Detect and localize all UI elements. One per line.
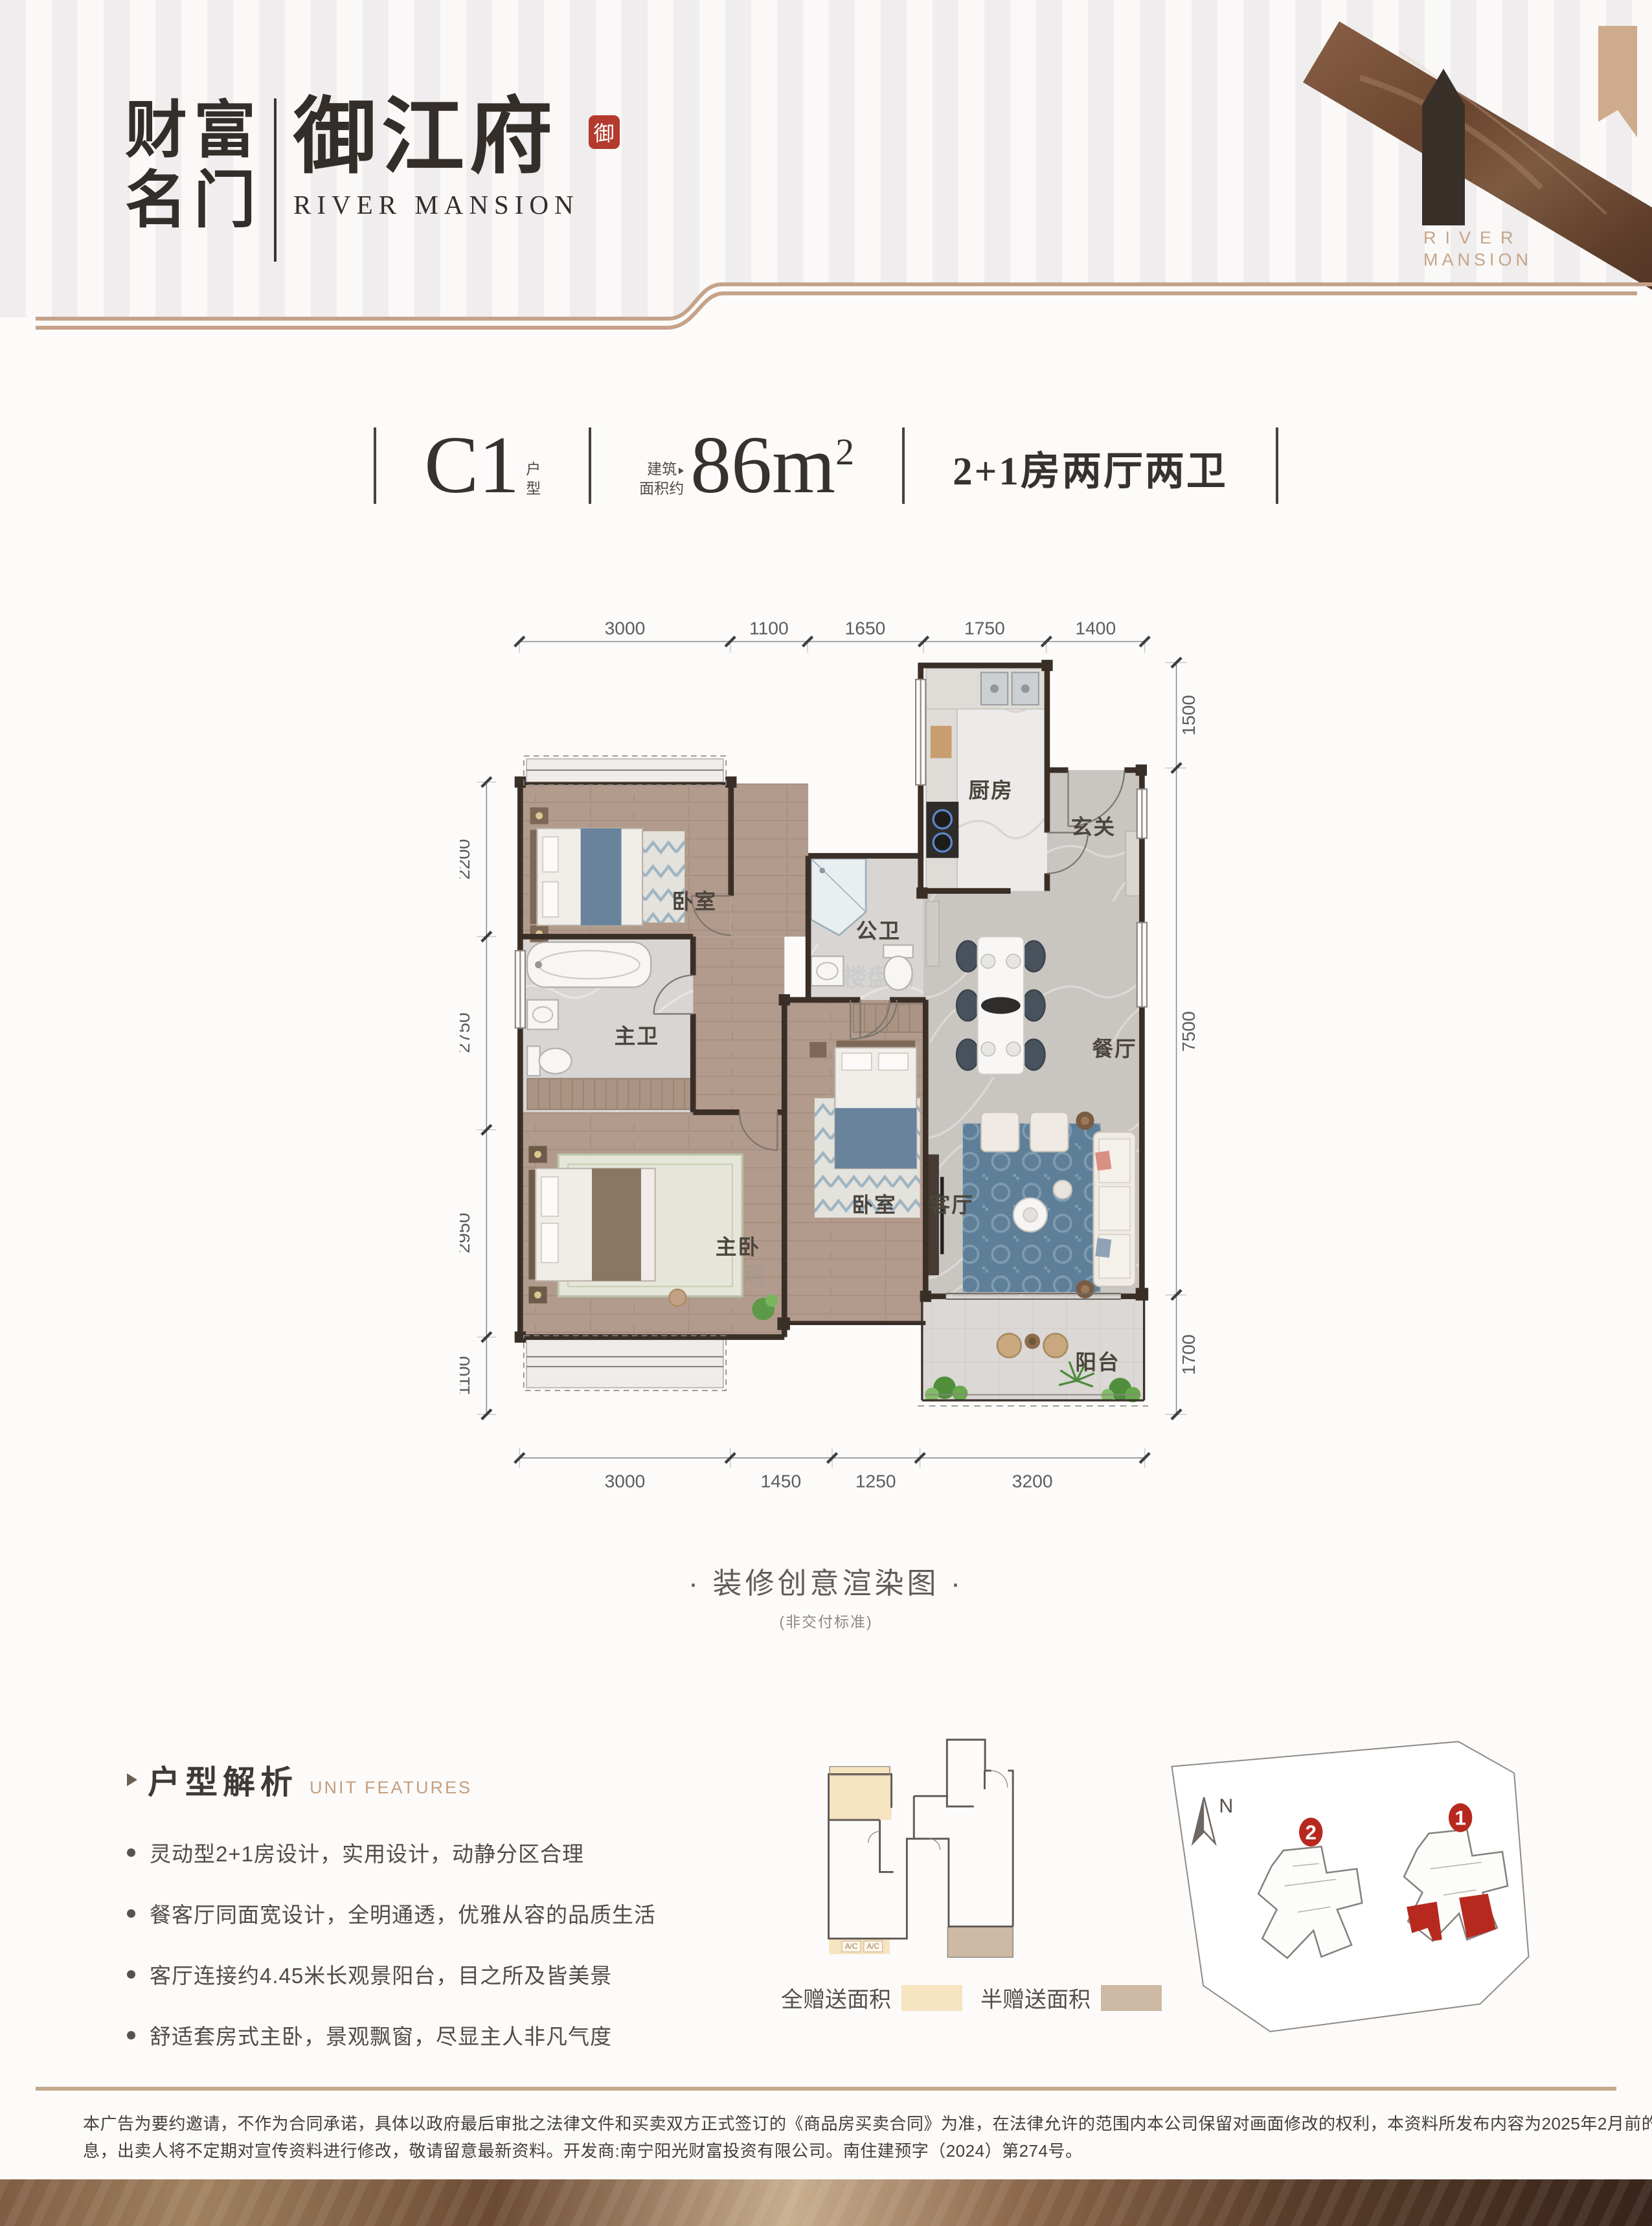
caption-text: · 装修创意渲染图 · <box>0 1560 1652 1602</box>
footer-rule <box>36 2087 1616 2091</box>
label-kitchen: 厨房 <box>968 778 1013 802</box>
svg-text:1100: 1100 <box>749 620 789 639</box>
features-list: 灵动型2+1房设计，实用设计，动静分区合理 餐客厅同面宽设计，全明通透，优雅从容… <box>127 1837 775 2050</box>
logo-main-block: 御江府 RIVER MANSION <box>293 96 580 220</box>
area-label: 建筑 面积约 <box>639 460 684 499</box>
svg-text:3000: 3000 <box>605 620 646 639</box>
unit-suffix: 户 型 <box>526 460 541 499</box>
siteplan: N 2 1 <box>1094 1689 1606 2043</box>
plan-caption: · 装修创意渲染图 · (非交付标准) <box>0 1560 1652 1631</box>
decor-mansion-text: MANSION <box>1423 250 1532 269</box>
gift-half-area <box>947 1927 1013 1958</box>
bullet-icon <box>127 1909 135 1918</box>
bottom-marble-band <box>0 2179 1652 2226</box>
logo-divider <box>274 98 277 262</box>
badge-1: 1 <box>1454 1807 1465 1830</box>
legend-full-label: 全赠送面积 <box>781 1982 891 2014</box>
label-dining: 餐厅 <box>1092 1038 1137 1061</box>
area-superscript: 2 <box>835 431 854 473</box>
brand-logo: 财富 名门 御江府 RIVER MANSION 御 <box>125 96 620 262</box>
svg-text:A/C: A/C <box>867 1943 879 1951</box>
svg-text:N: N <box>1219 1795 1233 1817</box>
disclaimer-line2: 息，出卖人将不定期对宣传资料进行修改，敬请留意最新资料。开发商:南宁阳光财富投资… <box>83 2137 1594 2164</box>
gift-area-miniplan: A/C A/C <box>821 1731 1035 1973</box>
svg-text:1650: 1650 <box>845 620 886 639</box>
disclaimer-line1: 本广告为要约邀请，不作为合同承诺，具体以政府最后审批之法律文件和买卖双方正式签订… <box>83 2110 1594 2137</box>
project-name-en: RIVER MANSION <box>293 189 580 220</box>
svg-text:1450: 1450 <box>760 1471 801 1492</box>
feature-item: 客厅连接约4.45米长观景阳台，目之所及皆美景 <box>127 1959 775 1990</box>
feature-item: 灵动型2+1房设计，实用设计，动静分区合理 <box>127 1837 775 1868</box>
features-title-cn: 户型解析 <box>148 1756 298 1803</box>
legend-full-swatch <box>901 1985 962 2011</box>
small-arrow-icon <box>679 468 684 474</box>
unit-area: 86m2 <box>690 425 854 506</box>
label-guest-bath: 公卫 <box>856 919 901 942</box>
legend-half-label: 半赠送面积 <box>980 1982 1091 2014</box>
unit-code: C1 <box>424 425 519 506</box>
svg-text:1500: 1500 <box>1178 695 1199 736</box>
bullet-icon <box>127 1970 135 1979</box>
svg-text:3200: 3200 <box>1012 1471 1053 1492</box>
seal-icon: 御 <box>589 115 620 149</box>
feature-item: 舒适套房式主卧，景观飘窗，尽显主人非凡气度 <box>127 2019 775 2050</box>
title-separator <box>1276 427 1278 504</box>
label-living: 客厅 <box>929 1192 974 1216</box>
poster-page: RIVER MANSION 财富 名门 御江府 RIVER MANSION 御 … <box>0 0 1652 2226</box>
badge-2: 2 <box>1306 1821 1317 1844</box>
features-title-en: UNIT FEATURES <box>310 1778 472 1798</box>
svg-text:3000: 3000 <box>605 1471 646 1492</box>
svg-text:2950: 2950 <box>460 1213 473 1254</box>
svg-text:1250: 1250 <box>855 1471 896 1492</box>
unit-features-section: 户型解析 UNIT FEATURES 灵动型2+1房设计，实用设计，动静分区合理… <box>127 1756 775 2080</box>
title-separator <box>902 427 905 504</box>
brand-line2: 名门 <box>125 166 262 236</box>
brand-cn-block: 财富 名门 <box>125 96 262 235</box>
features-header: 户型解析 UNIT FEATURES <box>127 1756 775 1803</box>
caption-note: (非交付标准) <box>0 1609 1652 1631</box>
svg-text:2750: 2750 <box>460 1012 473 1053</box>
floorplan: 楼盘网 楼盘网 楼盘网 <box>460 620 1205 1499</box>
svg-text:7500: 7500 <box>1178 1011 1199 1052</box>
label-bedroom1: 卧室 <box>672 889 717 913</box>
title-separator <box>374 427 376 504</box>
brand-line1: 财富 <box>125 96 262 166</box>
svg-text:1700: 1700 <box>1178 1334 1199 1375</box>
label-balcony: 阳台 <box>1075 1350 1120 1374</box>
label-foyer: 玄关 <box>1071 815 1116 839</box>
project-name-cn: 御江府 <box>293 96 580 179</box>
feature-item: 餐客厅同面宽设计，全明通透，优雅从容的品质生活 <box>127 1898 775 1929</box>
bullet-icon <box>127 1848 135 1857</box>
unit-title-row: C1 户 型 建筑 面积约 86m2 2+1房两厅两卫 <box>0 425 1652 506</box>
svg-text:2200: 2200 <box>460 839 473 880</box>
disclaimer: 本广告为要约邀请，不作为合同承诺，具体以政府最后审批之法律文件和买卖双方正式签订… <box>83 2110 1594 2164</box>
bullet-icon <box>127 2031 135 2039</box>
label-master-bath: 主卫 <box>615 1025 659 1048</box>
title-separator <box>589 427 591 504</box>
label-master-bedroom: 主卧 <box>716 1235 760 1258</box>
svg-text:1400: 1400 <box>1075 620 1116 639</box>
svg-text:1750: 1750 <box>964 620 1005 639</box>
section-marker-icon <box>127 1773 137 1786</box>
svg-text:A/C: A/C <box>845 1943 857 1951</box>
unit-layout: 2+1房两厅两卫 <box>953 438 1228 496</box>
svg-text:1100: 1100 <box>460 1356 473 1396</box>
decor-river-text: RIVER <box>1423 228 1522 247</box>
label-bedroom2: 卧室 <box>852 1192 896 1216</box>
